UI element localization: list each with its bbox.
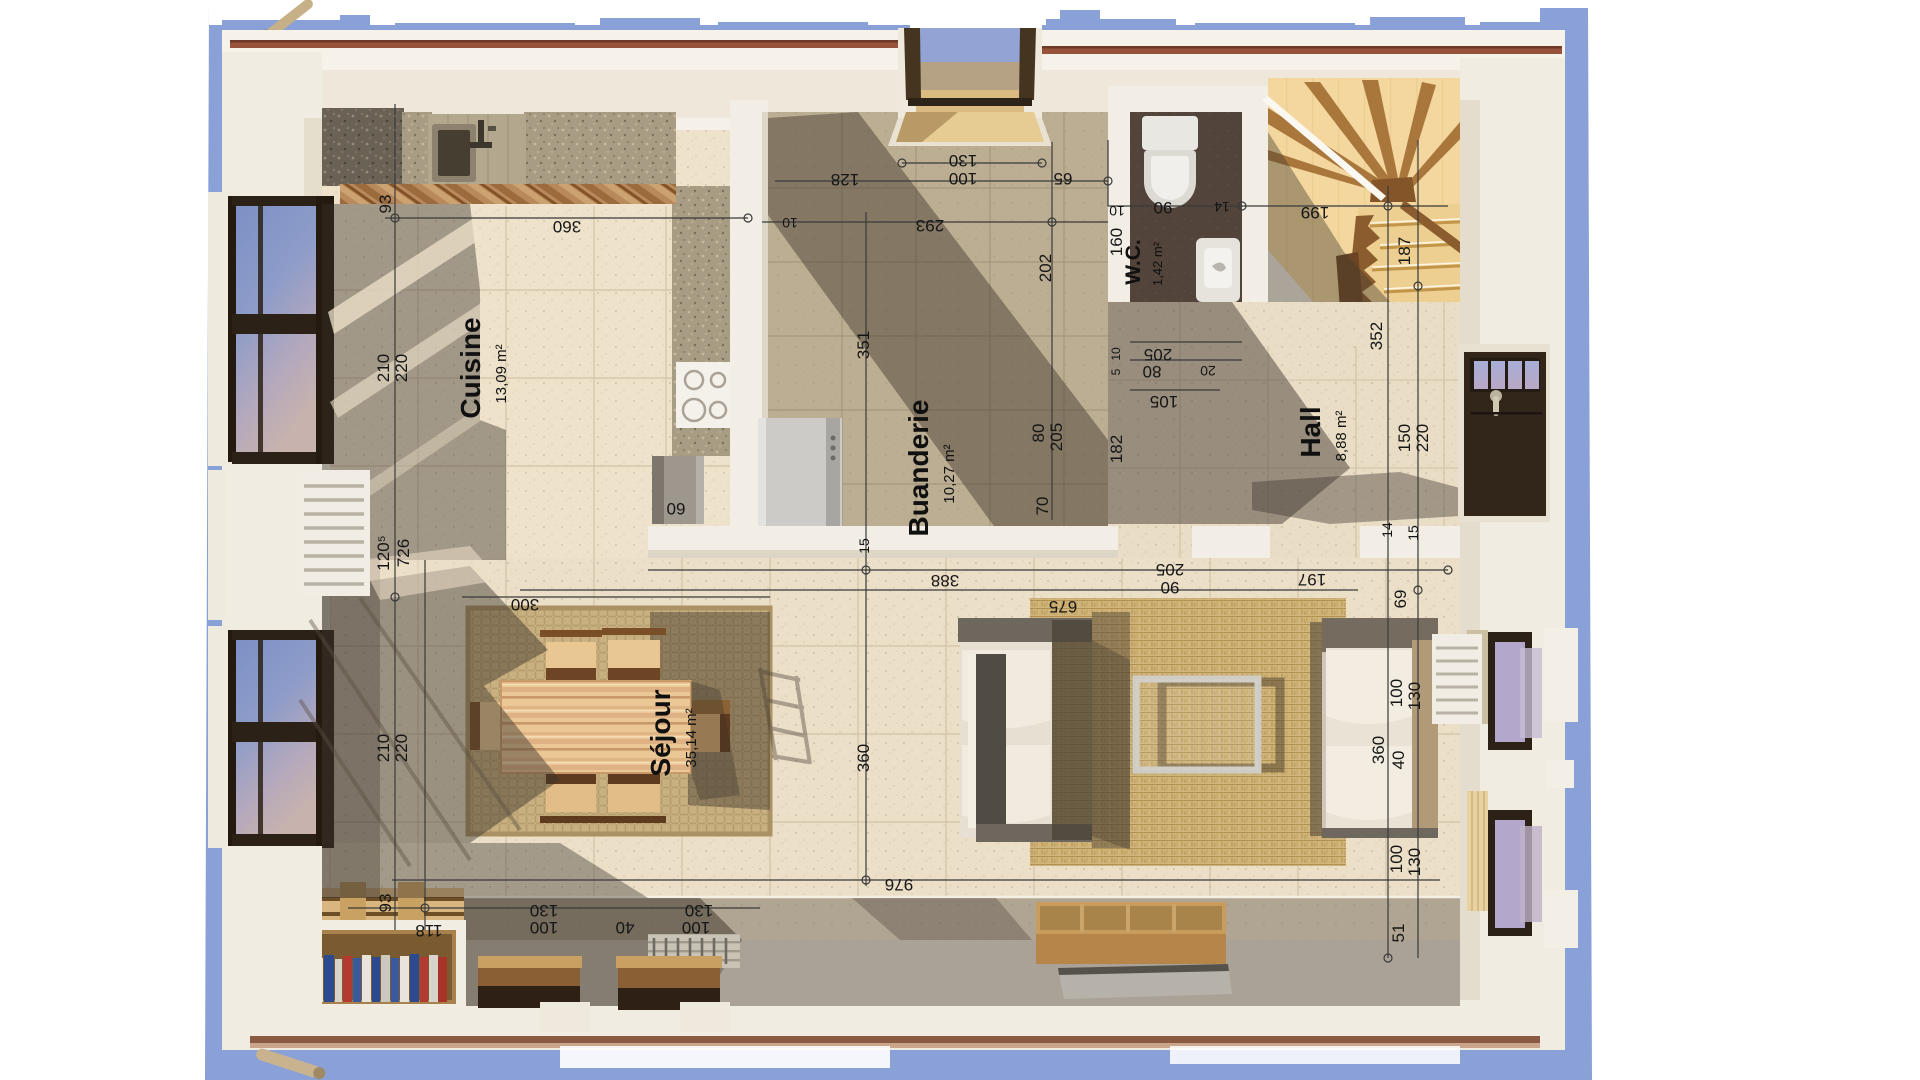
svg-text:293: 293 [916, 216, 944, 235]
svg-text:160: 160 [1107, 228, 1126, 256]
svg-text:8,88 m²: 8,88 m² [1333, 411, 1350, 462]
svg-text:51: 51 [1389, 924, 1408, 943]
svg-text:675: 675 [1049, 597, 1077, 616]
svg-text:360: 360 [1369, 736, 1388, 764]
svg-text:10,27 m²: 10,27 m² [941, 444, 958, 503]
svg-text:70: 70 [1033, 497, 1052, 516]
svg-text:35,14 m²: 35,14 m² [683, 708, 700, 767]
svg-text:210: 210 [374, 354, 393, 382]
svg-text:20: 20 [1200, 363, 1216, 379]
svg-text:360: 360 [553, 217, 581, 236]
svg-text:80: 80 [1029, 424, 1048, 443]
svg-text:105: 105 [1150, 392, 1178, 411]
svg-text:100: 100 [949, 169, 977, 188]
svg-text:100: 100 [1387, 845, 1406, 873]
svg-text:Cuisine: Cuisine [455, 317, 486, 418]
svg-text:90: 90 [1154, 198, 1173, 217]
svg-text:40: 40 [616, 918, 635, 937]
svg-text:Séjour: Séjour [645, 689, 676, 776]
svg-text:205: 205 [1047, 423, 1066, 451]
svg-text:14: 14 [1379, 522, 1395, 538]
svg-text:360: 360 [854, 744, 873, 772]
svg-text:Hall: Hall [1295, 406, 1326, 457]
svg-text:Buanderie: Buanderie [903, 400, 934, 537]
svg-text:220: 220 [392, 734, 411, 762]
svg-text:726: 726 [394, 539, 413, 567]
svg-text:220: 220 [1413, 424, 1432, 452]
svg-text:150: 150 [1395, 424, 1414, 452]
svg-text:100: 100 [682, 918, 710, 937]
svg-text:130: 130 [685, 901, 713, 920]
svg-text:100: 100 [1387, 679, 1406, 707]
svg-text:220: 220 [392, 354, 411, 382]
svg-text:130: 130 [1405, 848, 1424, 876]
svg-text:1,42 m²: 1,42 m² [1150, 241, 1165, 286]
svg-text:10: 10 [1109, 347, 1123, 361]
svg-text:187: 187 [1395, 237, 1414, 265]
svg-text:388: 388 [931, 571, 959, 590]
svg-text:40: 40 [1389, 751, 1408, 770]
svg-text:976: 976 [885, 875, 913, 894]
svg-text:93: 93 [376, 894, 395, 913]
svg-text:65: 65 [1054, 169, 1073, 188]
svg-text:130: 130 [530, 901, 558, 920]
svg-text:205: 205 [1156, 560, 1184, 579]
svg-text:210: 210 [374, 734, 393, 762]
svg-text:5: 5 [1109, 368, 1123, 375]
svg-text:199: 199 [1301, 203, 1329, 222]
svg-text:60: 60 [667, 499, 686, 518]
svg-text:120⁵: 120⁵ [374, 535, 393, 570]
svg-text:130: 130 [1405, 682, 1424, 710]
svg-text:90: 90 [1161, 578, 1180, 597]
svg-text:130: 130 [949, 151, 977, 170]
svg-text:13,09 m²: 13,09 m² [493, 344, 510, 403]
svg-text:15: 15 [1405, 525, 1421, 541]
svg-text:300: 300 [511, 595, 539, 614]
svg-text:15: 15 [856, 538, 872, 554]
svg-text:352: 352 [1367, 322, 1386, 350]
svg-text:128: 128 [831, 170, 859, 189]
svg-text:14: 14 [1214, 199, 1230, 215]
svg-text:10: 10 [1109, 203, 1125, 219]
svg-text:80: 80 [1143, 362, 1162, 381]
svg-text:93: 93 [376, 195, 395, 214]
svg-text:100: 100 [530, 918, 558, 937]
svg-text:118: 118 [415, 921, 442, 940]
svg-text:10: 10 [782, 215, 798, 231]
svg-text:351: 351 [854, 331, 873, 359]
svg-text:197: 197 [1298, 570, 1326, 589]
svg-text:182: 182 [1107, 435, 1126, 463]
svg-text:202: 202 [1036, 254, 1055, 282]
svg-text:205: 205 [1144, 345, 1172, 364]
svg-text:69: 69 [1391, 590, 1410, 609]
